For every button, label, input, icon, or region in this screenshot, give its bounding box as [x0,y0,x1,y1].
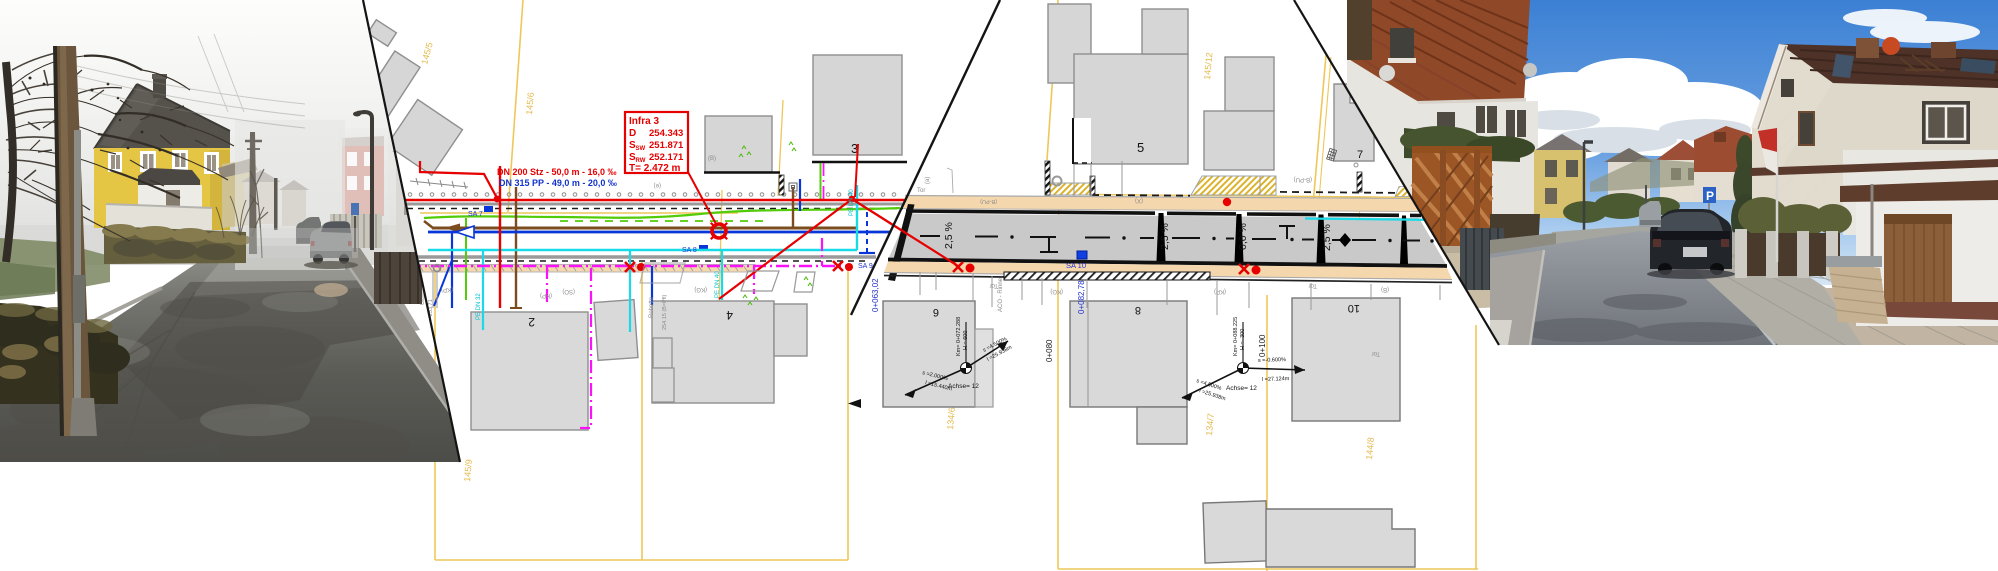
svg-text:252.171: 252.171 [649,152,684,163]
svg-text:l =27.124m: l =27.124m [1262,376,1290,383]
svg-text:4: 4 [726,308,733,322]
svg-text:2: 2 [528,315,535,329]
svg-text:(KG): (KG) [1050,288,1063,294]
svg-text:(B): (B) [708,156,716,162]
svg-text:SA 10: SA 10 [1066,261,1086,270]
svg-text:145/9: 145/9 [462,459,474,482]
svg-text:(e): (e) [654,182,661,188]
svg-text:2,5 %: 2,5 % [943,222,955,249]
svg-text:254.343: 254.343 [649,128,683,139]
svg-text:P: P [1706,189,1714,203]
svg-text:PE DN 40: PE DN 40 [715,271,721,298]
svg-text:Achse= 12: Achse= 12 [948,383,979,390]
svg-text:Infra 3: Infra 3 [629,116,659,127]
svg-text:134/6: 134/6 [945,407,957,430]
svg-text:SA 7: SA 7 [468,211,483,218]
svg-text:0+080: 0+080 [1045,339,1054,362]
svg-text:(B-PU): (B-PU) [1294,176,1312,182]
svg-text:Achse= 12: Achse= 12 [1226,385,1257,392]
svg-text:SA 9: SA 9 [858,263,873,270]
svg-text:(B-PU): (B-PU) [980,198,997,204]
svg-text:0+082,78: 0+082,78 [1077,280,1086,314]
svg-text:144/8: 144/8 [1364,437,1376,460]
svg-text:8: 8 [1135,304,1141,316]
svg-text:ACO - Rinne: ACO - Rinne [998,277,1004,312]
svg-text:6: 6 [933,306,939,318]
svg-text:(SO): (SO) [562,288,575,294]
svg-text:134/7: 134/7 [1204,413,1216,436]
svg-text:(X): (X) [1135,197,1143,203]
svg-text:Tor: Tor [1372,350,1380,356]
svg-text:T= 2.472 m: T= 2.472 m [629,163,681,174]
svg-text:(B): (B) [1381,286,1389,292]
svg-text:PE DN 32: PE DN 32 [476,293,482,320]
svg-text:(KP): (KP) [1214,288,1226,294]
svg-text:D: D [629,128,636,139]
svg-text:s =-0.600%: s =-0.600% [1258,357,1286,364]
svg-text:SA 8: SA 8 [682,247,697,254]
svg-text:2,5 %: 2,5 % [1159,223,1171,250]
svg-text:251.871: 251.871 [649,140,684,151]
svg-text:Robotte: Robotte [649,296,655,318]
svg-text:5: 5 [1137,140,1144,155]
svg-text:SW: SW [636,146,646,152]
svg-text:Km= 0+088.225: Km= 0+088.225 [1233,317,1239,356]
svg-text:(KP): (KP) [441,286,453,292]
svg-text:DN 200 Stz - 50,0 m - 16,0 ‰: DN 200 Stz - 50,0 m - 16,0 ‰ [497,167,617,177]
svg-text:DN 315 PP - 49,0 m - 20,0 ‰: DN 315 PP - 49,0 m - 20,0 ‰ [499,178,617,188]
svg-text:145/6: 145/6 [524,92,536,115]
svg-text:10: 10 [1348,302,1360,314]
svg-text:(KG): (KG) [694,286,707,292]
svg-text:Tor: Tor [990,282,998,288]
svg-text:Tor: Tor [1309,282,1317,288]
svg-text:H = 600: H = 600 [963,331,969,350]
svg-text:Tor: Tor [917,188,925,194]
svg-text:Km= 0+072.288: Km= 0+072.288 [956,317,962,356]
svg-text:2,5 %: 2,5 % [1321,224,1333,251]
svg-text:254.15 (B=Pfl): 254.15 (B=Pfl) [662,295,668,330]
svg-text:0,0 %: 0,0 % [1237,223,1249,250]
svg-text:0+100: 0+100 [1258,334,1267,357]
svg-text:(KP): (KP) [540,292,552,298]
svg-text:H = -300: H = -300 [1240,329,1246,350]
svg-text:PE DN 40: PE DN 40 [849,189,855,216]
svg-text:0+063,02: 0+063,02 [871,278,880,312]
svg-text:7: 7 [1357,149,1363,161]
svg-text:(a): (a) [925,177,931,184]
